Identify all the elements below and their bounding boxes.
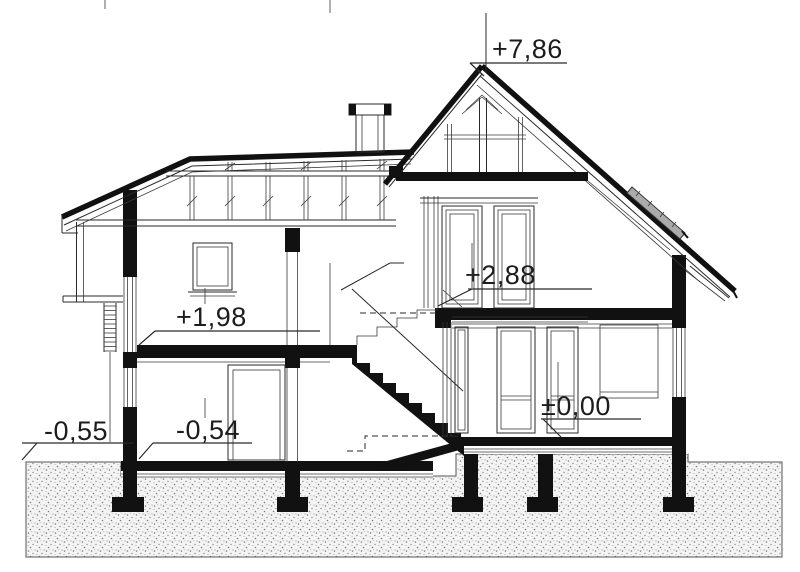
level-label-ground-floor-left: -0,54 bbox=[176, 415, 240, 445]
level-marker-ground-floor-left: -0,54 bbox=[139, 398, 252, 459]
blueprint-canvas: +7,86 +2,88 +1,98 ±0,00 -0,54 bbox=[0, 0, 800, 572]
level-marker-exterior-grade: -0,55 bbox=[22, 352, 133, 460]
level-markers: +7,86 +2,88 +1,98 ±0,00 -0,54 bbox=[22, 34, 641, 460]
left-annex bbox=[63, 222, 123, 352]
house-section-drawing: +7,86 +2,88 +1,98 ±0,00 -0,54 bbox=[0, 0, 800, 572]
level-label-upper-floor-right: +2,88 bbox=[465, 260, 536, 290]
level-label-upper-floor-left: +1,98 bbox=[176, 302, 247, 332]
level-marker-upper-floor-left: +1,98 bbox=[139, 288, 320, 345]
radiator bbox=[104, 303, 116, 352]
level-marker-ground-floor: ±0,00 bbox=[541, 362, 641, 437]
left-roof-structure bbox=[62, 152, 414, 233]
level-label-ground-floor: ±0,00 bbox=[541, 391, 611, 421]
level-label-exterior-grade: -0,55 bbox=[44, 416, 108, 446]
roof-window bbox=[627, 187, 688, 239]
level-marker-upper-floor-right: +2,88 bbox=[438, 243, 592, 306]
staircase bbox=[330, 263, 464, 456]
level-label-ridge: +7,86 bbox=[492, 34, 563, 64]
chimney bbox=[349, 104, 391, 152]
dimension-ticks bbox=[105, 0, 486, 73]
